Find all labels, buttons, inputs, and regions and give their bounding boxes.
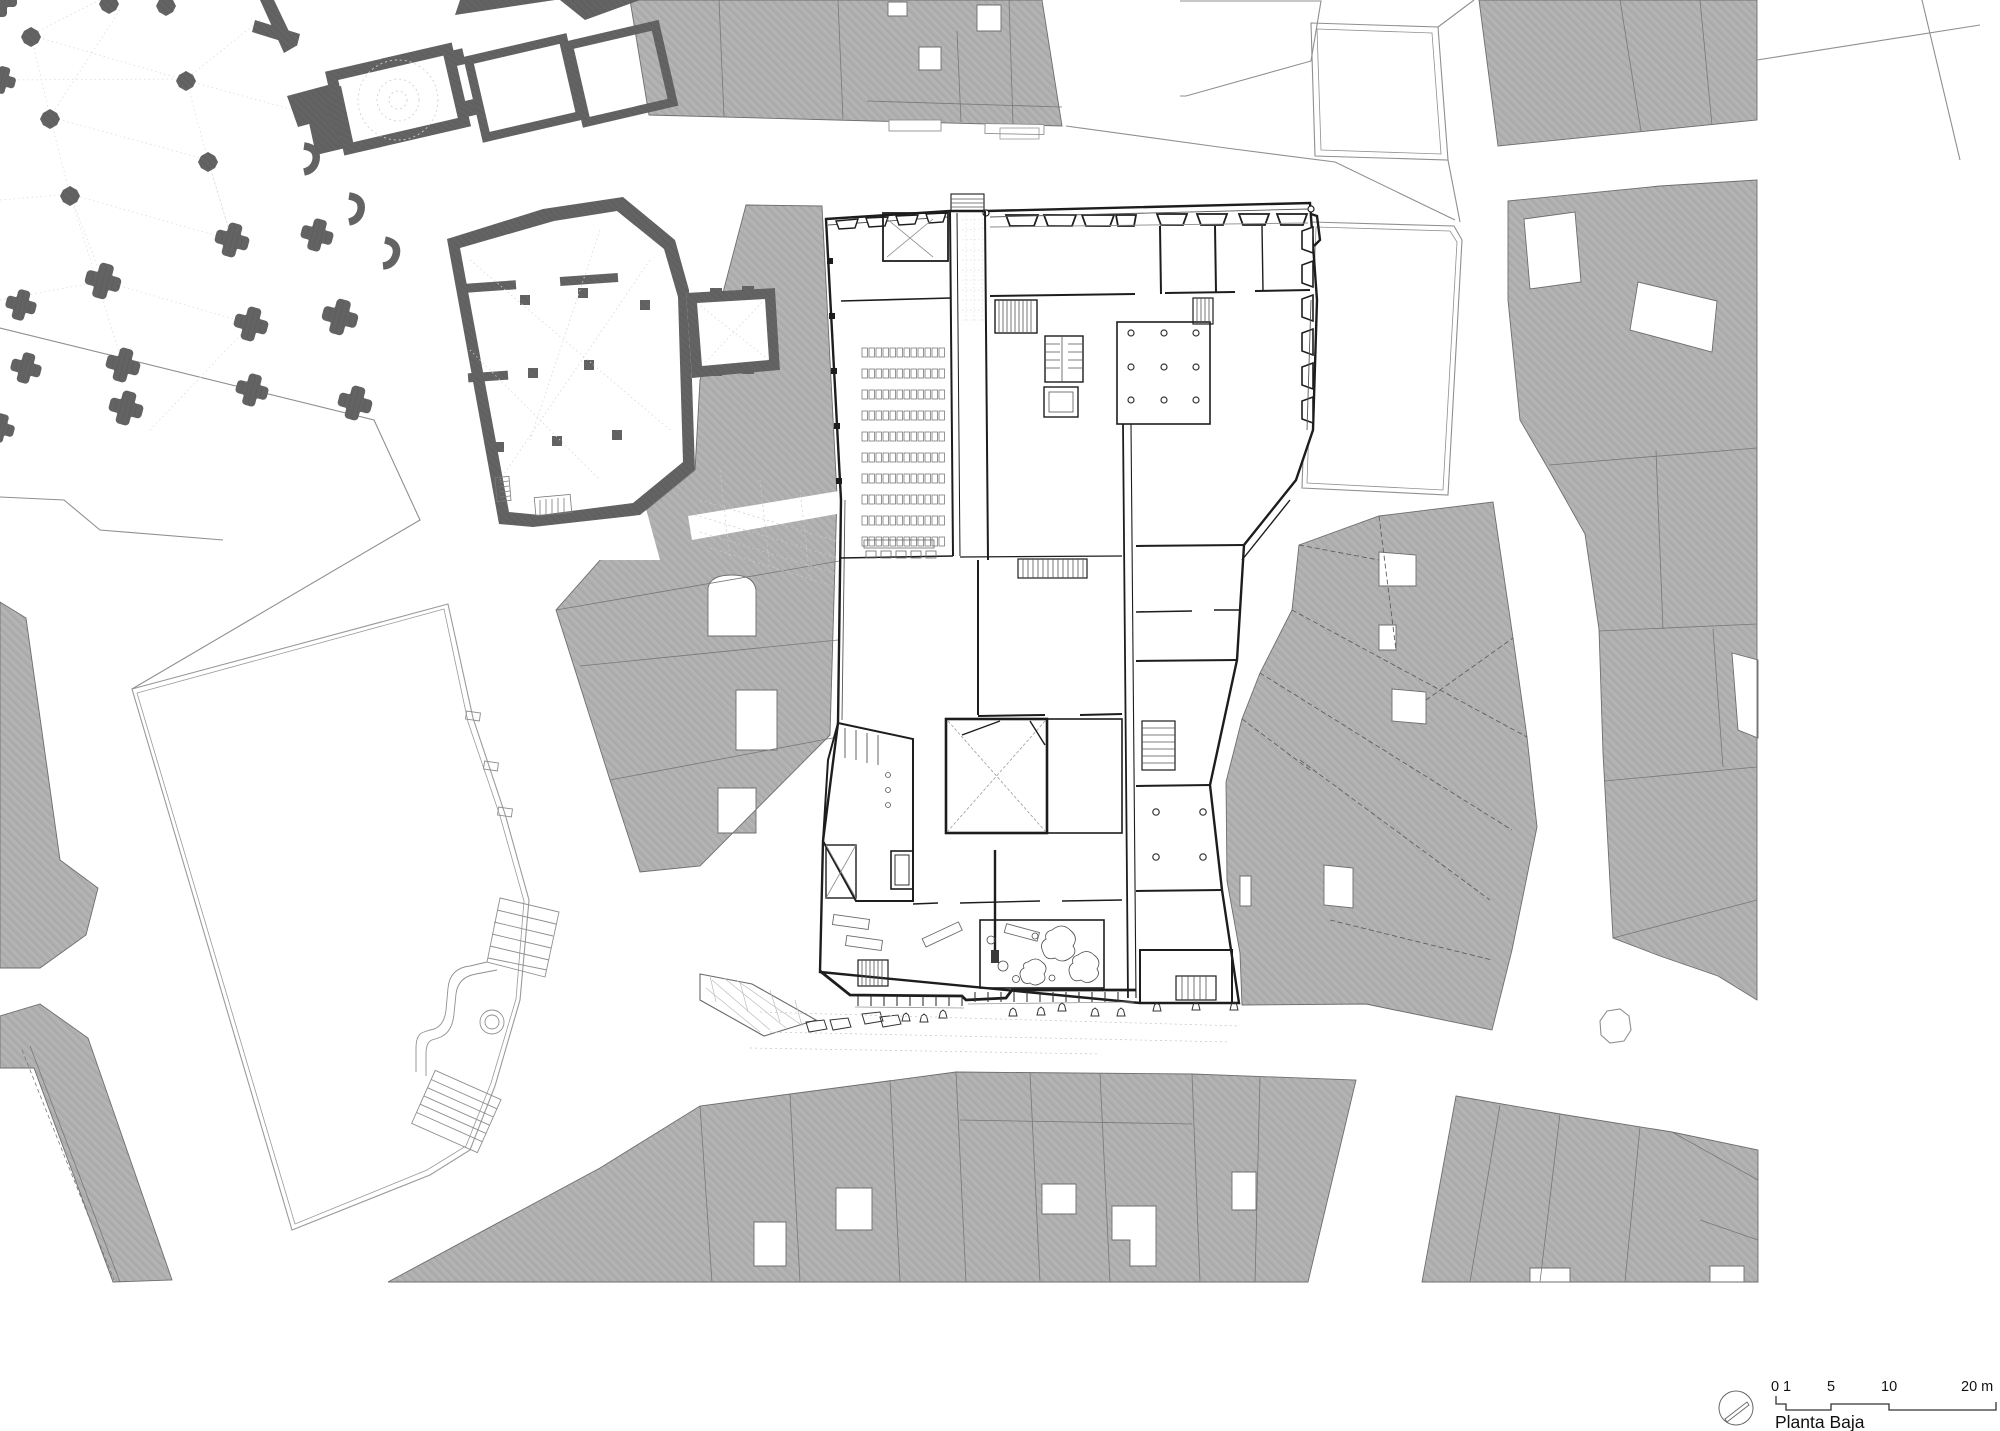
svg-text:20 m: 20 m [1961, 1379, 1993, 1395]
svg-text:0: 0 [1771, 1379, 1779, 1395]
svg-text:5: 5 [1827, 1379, 1835, 1395]
svg-text:1: 1 [1783, 1379, 1791, 1395]
svg-text:10: 10 [1881, 1379, 1897, 1395]
svg-text:Planta Baja: Planta Baja [1775, 1412, 1865, 1431]
